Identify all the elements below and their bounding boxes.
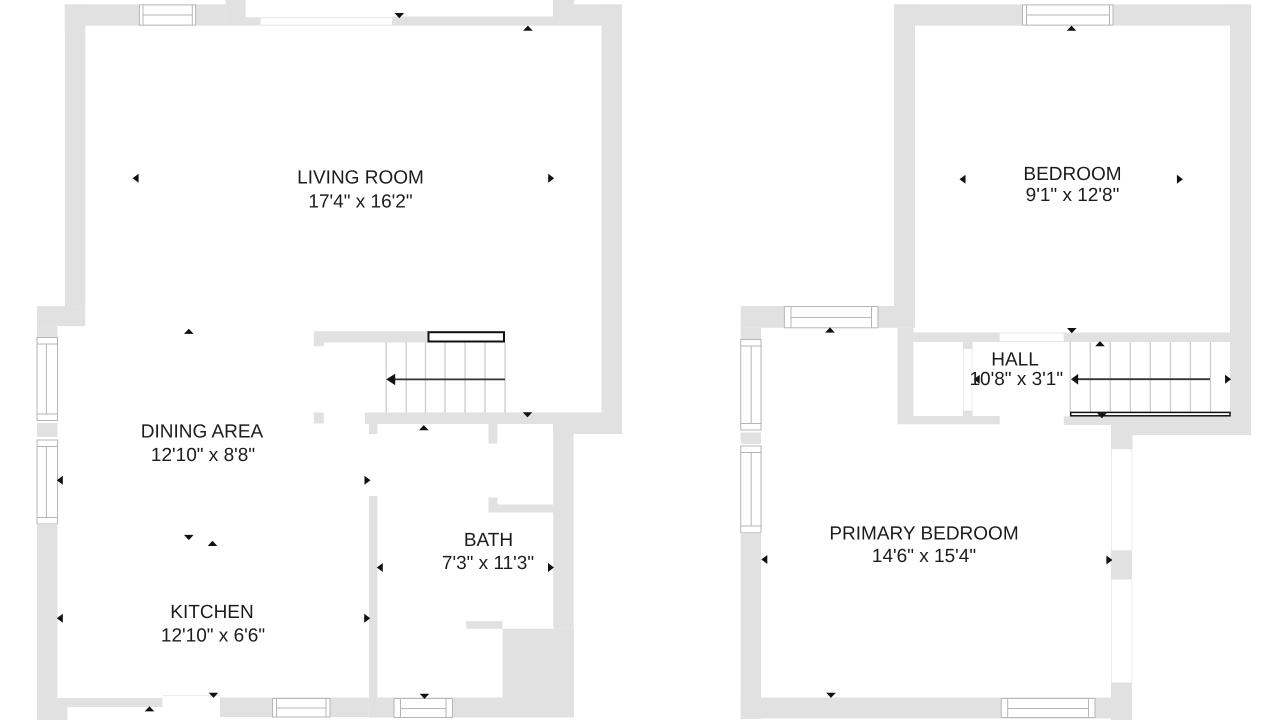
svg-text:PRIMARY BEDROOM: PRIMARY BEDROOM xyxy=(829,524,1018,545)
svg-text:10'8" x 3'1": 10'8" x 3'1" xyxy=(969,369,1063,390)
svg-text:17'4" x 16'2": 17'4" x 16'2" xyxy=(308,192,412,213)
svg-text:9'1" x 12'8": 9'1" x 12'8" xyxy=(1026,185,1120,206)
svg-text:7'3" x 11'3": 7'3" x 11'3" xyxy=(442,553,534,574)
svg-text:12'10" x 8'8": 12'10" x 8'8" xyxy=(151,445,255,466)
svg-text:HALL: HALL xyxy=(991,350,1039,371)
svg-text:KITCHEN: KITCHEN xyxy=(170,602,253,623)
svg-text:12'10" x 6'6": 12'10" x 6'6" xyxy=(161,626,265,647)
svg-text:BEDROOM: BEDROOM xyxy=(1023,164,1121,185)
svg-text:14'6" x 15'4": 14'6" x 15'4" xyxy=(872,546,976,567)
svg-text:LIVING ROOM: LIVING ROOM xyxy=(297,168,424,189)
svg-text:DINING AREA: DINING AREA xyxy=(141,422,264,443)
svg-text:BATH: BATH xyxy=(464,530,513,551)
